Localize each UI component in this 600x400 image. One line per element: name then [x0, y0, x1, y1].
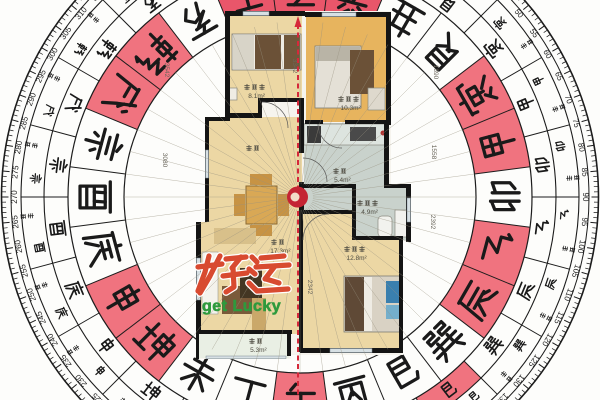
svg-text:2392: 2392	[429, 215, 436, 230]
svg-text:8.1m²: 8.1m²	[248, 93, 265, 100]
svg-text:2342: 2342	[306, 280, 313, 295]
svg-text:5.4m²: 5.4m²	[334, 177, 351, 184]
svg-text:1890: 1890	[432, 65, 439, 80]
svg-text:3080: 3080	[161, 153, 168, 168]
svg-text:265: 265	[10, 214, 20, 229]
svg-text:85: 85	[580, 167, 590, 177]
svg-text:1558: 1558	[430, 145, 437, 160]
svg-text:90: 90	[581, 193, 590, 202]
svg-text:4.9m²: 4.9m²	[361, 209, 378, 216]
svg-text:get Lucky: get Lucky	[202, 298, 281, 315]
svg-text:275: 275	[10, 165, 20, 180]
svg-text:12.8m²: 12.8m²	[346, 255, 367, 262]
svg-text:3342: 3342	[291, 59, 298, 74]
svg-text:270: 270	[10, 190, 19, 204]
svg-text:3542: 3542	[163, 63, 170, 78]
svg-text:95: 95	[580, 217, 590, 227]
